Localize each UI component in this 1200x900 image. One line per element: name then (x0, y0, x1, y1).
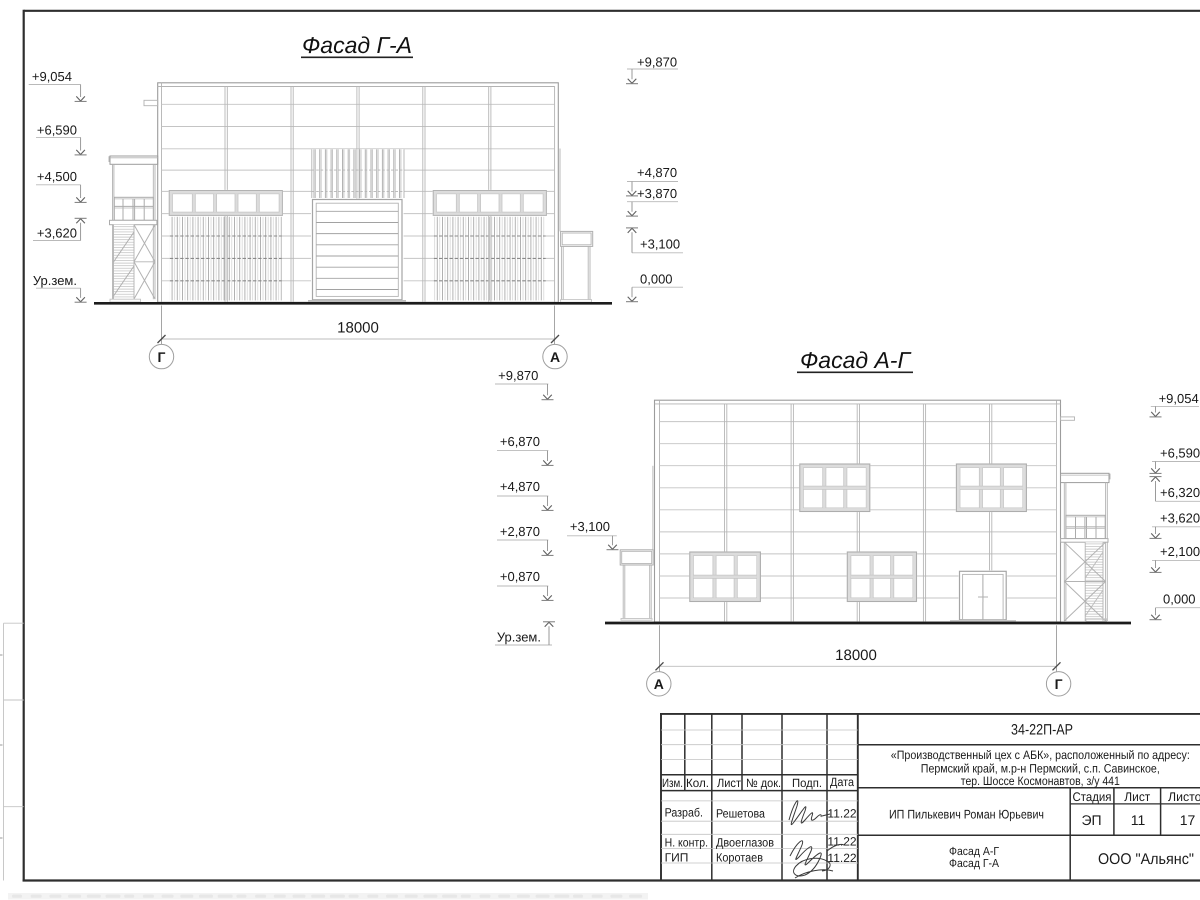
svg-text:Г: Г (158, 349, 166, 365)
svg-text:Двоеглазов: Двоеглазов (716, 836, 774, 850)
svg-text:тер. Шоссе Космонавтов, з/у 44: тер. Шоссе Космонавтов, з/у 441 (961, 774, 1120, 788)
svg-text:А: А (550, 349, 560, 365)
svg-text:«Производственный цех с АБК»,: «Производственный цех с АБК», расположен… (891, 748, 1190, 762)
svg-text:Подп.: Подп. (792, 776, 822, 790)
svg-text:+3,620: +3,620 (37, 226, 77, 241)
svg-text:11.22: 11.22 (827, 807, 856, 821)
svg-text:+9,870: +9,870 (498, 368, 538, 383)
svg-text:Коротаев: Коротаев (716, 850, 763, 864)
svg-text:+4,500: +4,500 (37, 169, 77, 184)
svg-text:Кол.: Кол. (686, 776, 709, 790)
svg-text:ЭП: ЭП (1081, 812, 1101, 828)
svg-text:+3,870: +3,870 (637, 186, 677, 201)
svg-text:Ур.зем.: Ур.зем. (497, 630, 541, 645)
svg-text:Г: Г (1055, 676, 1063, 692)
svg-text:Лист: Лист (1124, 790, 1150, 804)
svg-text:Лист: Лист (717, 776, 741, 790)
svg-text:Решетова: Решетова (716, 807, 765, 821)
svg-text:+9,054: +9,054 (1159, 391, 1199, 406)
svg-text:ИП Пилькевич Роман Юрьевич: ИП Пилькевич Роман Юрьевич (889, 808, 1044, 822)
svg-text:18000: 18000 (835, 647, 877, 664)
svg-text:Дата: Дата (830, 775, 854, 789)
svg-text:Разраб.: Разраб. (665, 806, 703, 820)
svg-text:34-22П-АР: 34-22П-АР (1011, 721, 1073, 738)
svg-text:Листов: Листов (1168, 790, 1200, 804)
svg-text:А: А (654, 676, 664, 692)
svg-text:ГИП: ГИП (665, 850, 689, 864)
svg-text:Ур.зем.: Ур.зем. (33, 273, 77, 288)
svg-text:№ док.: № док. (746, 776, 781, 790)
svg-text:18000: 18000 (337, 320, 379, 337)
svg-text:+6,870: +6,870 (500, 434, 540, 449)
svg-text:+0,870: +0,870 (500, 569, 540, 584)
svg-text:+9,054: +9,054 (32, 69, 72, 84)
svg-text:+6,590: +6,590 (37, 123, 77, 138)
svg-text:0,000: 0,000 (1163, 592, 1196, 607)
svg-text:+4,870: +4,870 (500, 479, 540, 494)
svg-text:11: 11 (1131, 812, 1146, 828)
svg-text:+2,100: +2,100 (1160, 544, 1200, 559)
svg-text:0,000: 0,000 (640, 272, 673, 287)
svg-text:Фасад А-Г: Фасад А-Г (800, 347, 911, 373)
svg-text:11.22: 11.22 (827, 835, 856, 849)
svg-text:+3,100: +3,100 (570, 519, 610, 534)
svg-text:ООО "Альянс": ООО "Альянс" (1098, 851, 1194, 868)
svg-text:Фасад Г-А: Фасад Г-А (302, 32, 412, 58)
svg-text:+3,620: +3,620 (1160, 511, 1200, 526)
svg-text:17: 17 (1180, 812, 1196, 828)
svg-text:Изм.: Изм. (662, 776, 683, 790)
svg-text:Фасад Г-А: Фасад Г-А (949, 857, 999, 870)
svg-text:11.22: 11.22 (827, 851, 856, 865)
svg-text:+4,870: +4,870 (637, 165, 677, 180)
svg-text:+6,590: +6,590 (1160, 446, 1200, 461)
svg-text:Стадия: Стадия (1073, 790, 1112, 804)
svg-text:+3,100: +3,100 (640, 237, 680, 252)
svg-text:Н. контр.: Н. контр. (665, 836, 708, 850)
svg-text:+6,320: +6,320 (1160, 485, 1200, 500)
svg-text:+9,870: +9,870 (637, 55, 677, 70)
svg-text:+2,870: +2,870 (500, 524, 540, 539)
